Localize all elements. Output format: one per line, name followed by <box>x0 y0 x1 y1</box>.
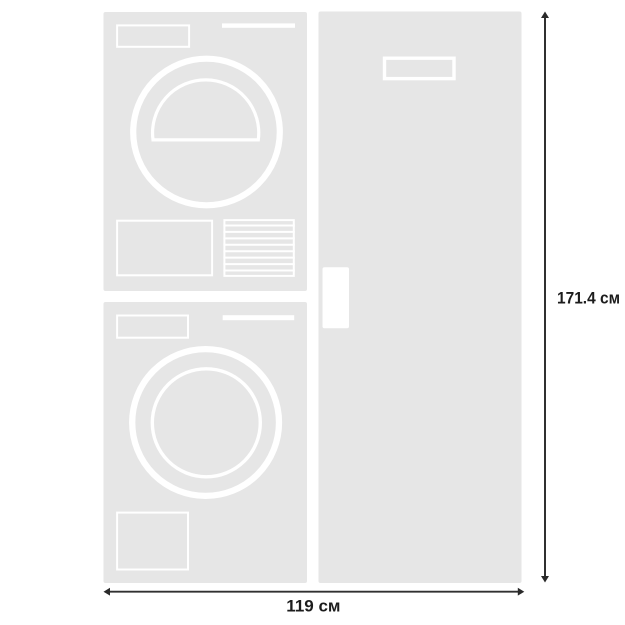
svg-text:119 см: 119 см <box>286 597 340 616</box>
svg-text:171.4 см: 171.4 см <box>557 288 620 307</box>
